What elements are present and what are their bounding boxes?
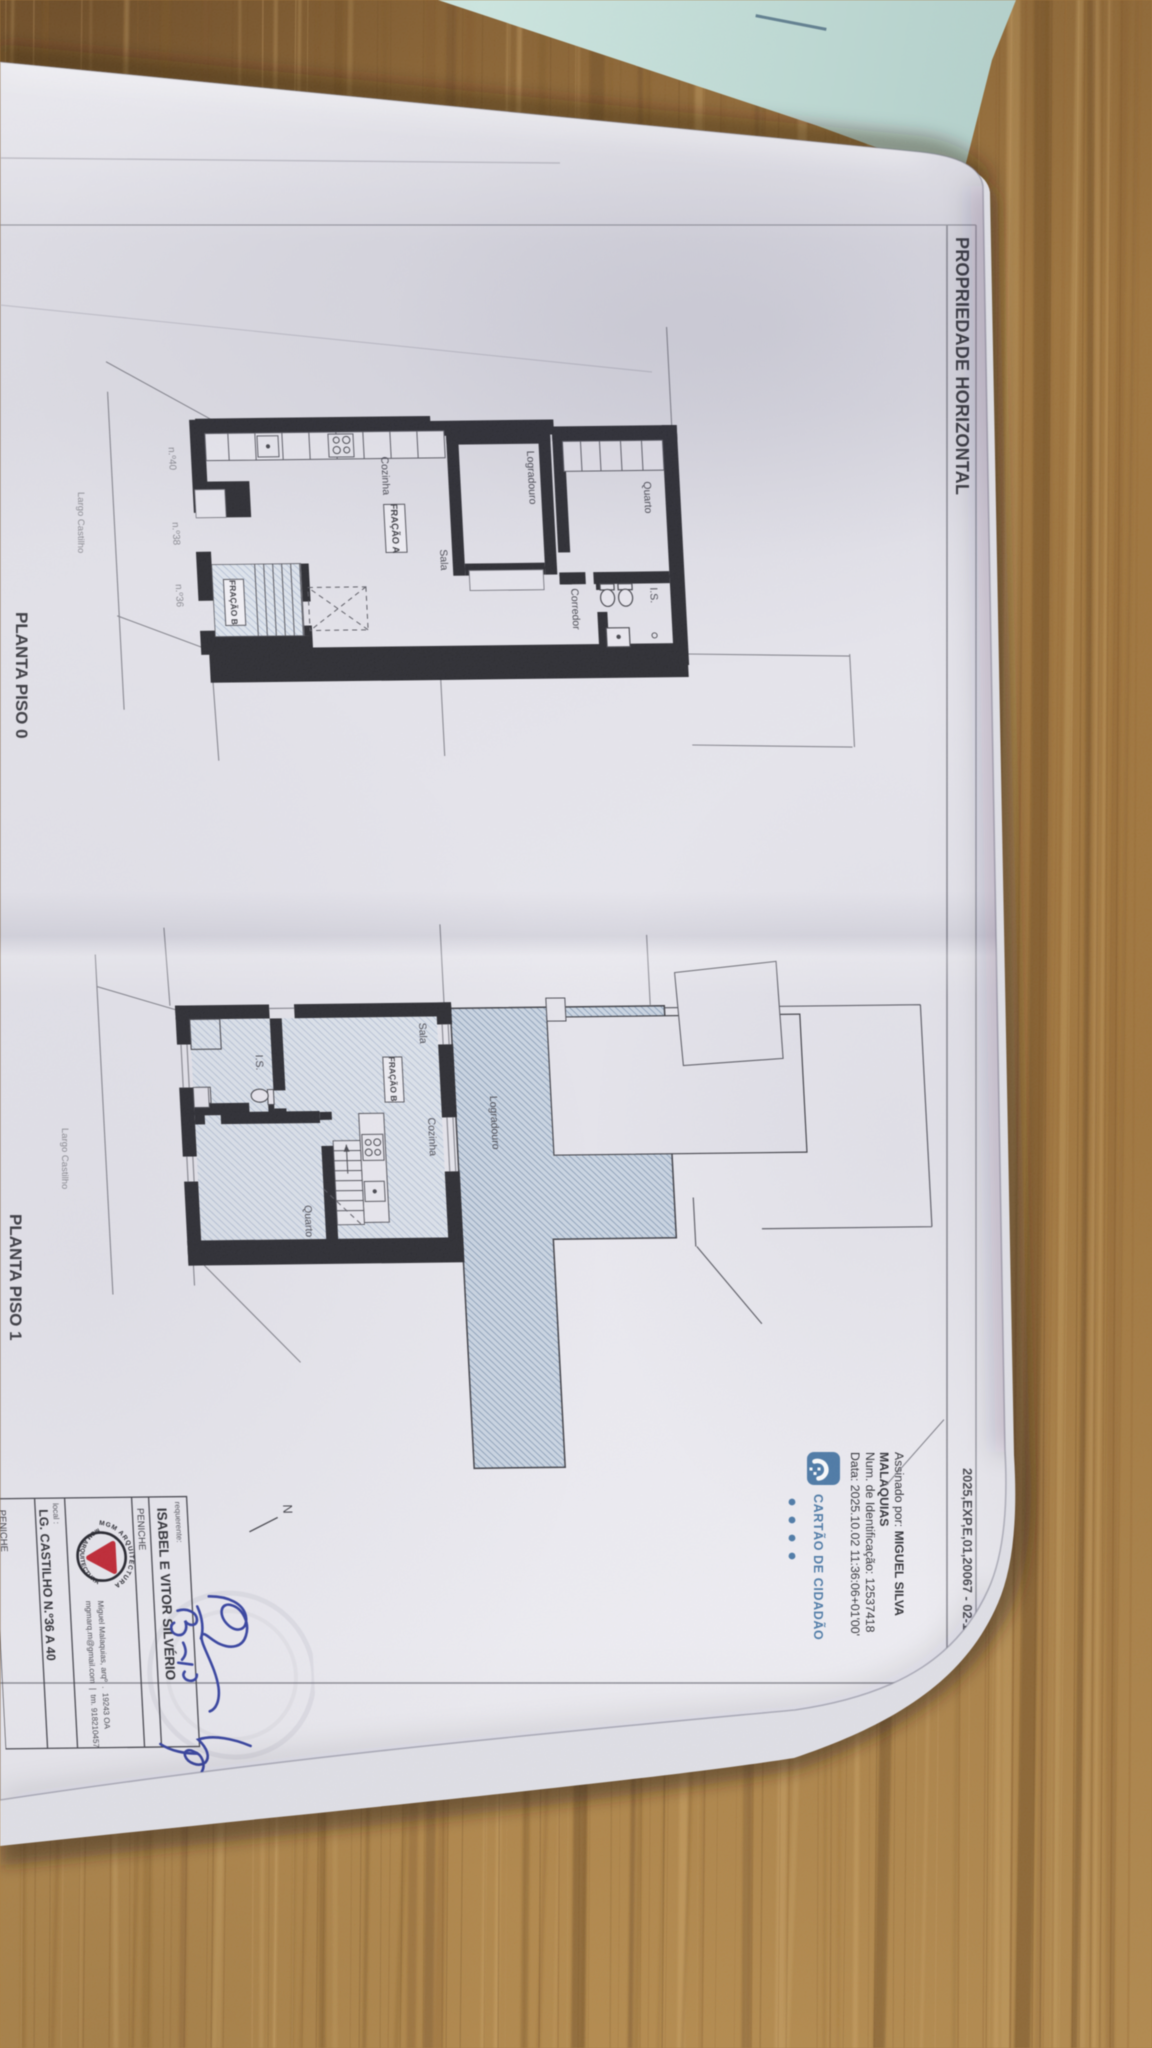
svg-text:PENICHE: PENICHE — [0, 1510, 9, 1552]
svg-text:N: N — [280, 1504, 295, 1514]
svg-text:I.S.: I.S. — [253, 1055, 266, 1071]
svg-text:Cozinha: Cozinha — [425, 1118, 439, 1157]
svg-text:LG. CASTILHO N.º36 A 40: LG. CASTILHO N.º36 A 40 — [36, 1509, 58, 1661]
svg-text:Sala: Sala — [437, 549, 450, 570]
svg-text:PENICHE: PENICHE — [134, 1508, 147, 1550]
svg-text:n.º40: n.º40 — [165, 447, 177, 471]
svg-text:local :: local : — [51, 1503, 61, 1524]
svg-text:I.S.: I.S. — [647, 587, 660, 603]
svg-text:Quarto: Quarto — [641, 481, 655, 513]
svg-text:n.º38: n.º38 — [169, 522, 181, 546]
svg-text:requerente:: requerente: — [173, 1502, 184, 1543]
svg-text:Corredor: Corredor — [568, 588, 582, 630]
svg-text:Cozinha: Cozinha — [378, 456, 392, 495]
svg-text:n.º36: n.º36 — [173, 584, 185, 608]
svg-text:Logradouro: Logradouro — [524, 451, 539, 505]
svg-text:Sala: Sala — [416, 1023, 429, 1044]
svg-text:Quarto: Quarto — [301, 1205, 315, 1237]
